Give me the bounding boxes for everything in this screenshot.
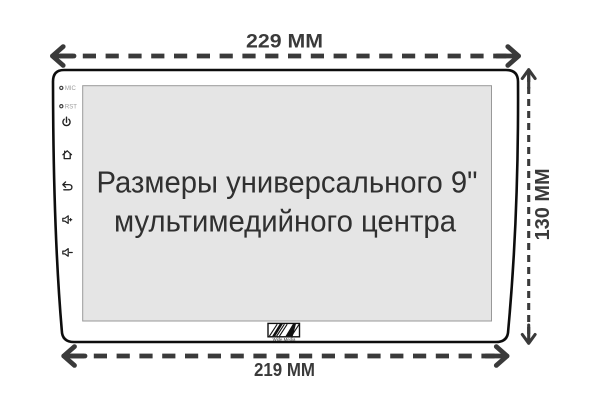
svg-text:Wide Media: Wide Media	[273, 337, 296, 342]
svg-text:219 ММ: 219 ММ	[254, 360, 315, 380]
svg-text:130 ММ: 130 ММ	[532, 168, 554, 240]
svg-text:RST: RST	[65, 104, 77, 110]
svg-text:229 ММ: 229 ММ	[246, 32, 323, 53]
svg-text:Размеры универсального 9": Размеры универсального 9"	[97, 165, 478, 200]
svg-text:мультимедийного центра: мультимедийного центра	[114, 203, 457, 238]
svg-text:MIC: MIC	[65, 86, 77, 92]
